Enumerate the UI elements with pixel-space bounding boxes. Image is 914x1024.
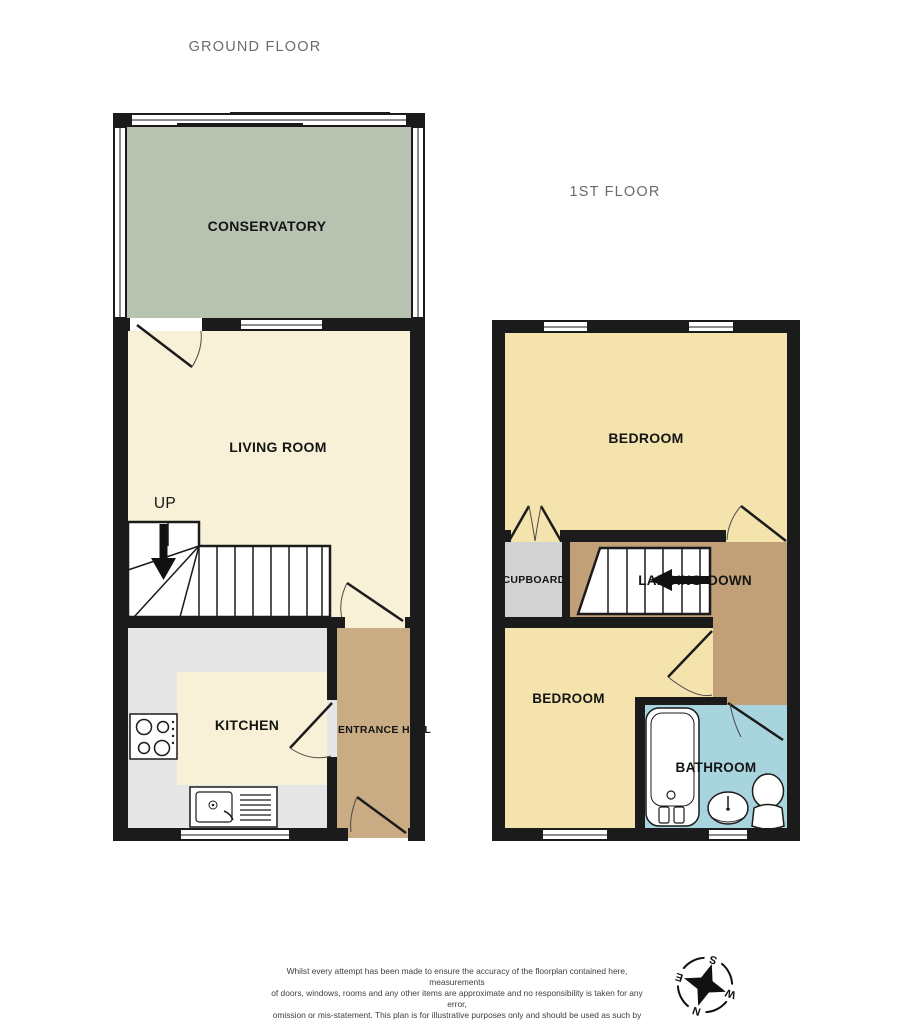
window-living-room (240, 318, 323, 331)
up-arrow-icon (151, 524, 176, 580)
wall (405, 617, 412, 628)
roof-line (230, 112, 390, 114)
down-arrow-icon (650, 569, 710, 591)
roof-line (177, 123, 303, 126)
wall (635, 697, 727, 705)
wall-corner-post (407, 113, 425, 127)
wall (327, 628, 337, 700)
window-conservatory-left (113, 127, 127, 318)
window-bedroom-front (542, 828, 608, 841)
wall (113, 617, 345, 628)
wall (635, 697, 645, 828)
wall-corner-post (113, 113, 131, 127)
window-bedroom-rear-2 (688, 320, 734, 333)
wall (323, 318, 425, 331)
wall (505, 530, 511, 542)
wall (202, 318, 240, 331)
wall (560, 530, 726, 542)
wall (492, 320, 505, 841)
wall (608, 828, 708, 841)
wall (327, 757, 337, 828)
wall (290, 828, 348, 841)
window-bathroom (708, 828, 748, 841)
floorplan-canvas: GROUND FLOOR 1ST FLOOR (0, 0, 914, 1024)
wall (588, 320, 688, 333)
window-kitchen (180, 828, 290, 841)
wall (787, 320, 800, 841)
wall (410, 318, 425, 841)
window-conservatory-right (411, 127, 425, 318)
stair-arrows (0, 0, 914, 1024)
wall (505, 617, 713, 628)
wall (562, 542, 570, 617)
wall (408, 828, 425, 841)
wall (113, 318, 128, 841)
wall (113, 828, 180, 841)
window-bedroom-rear-1 (543, 320, 588, 333)
wall (113, 318, 130, 331)
